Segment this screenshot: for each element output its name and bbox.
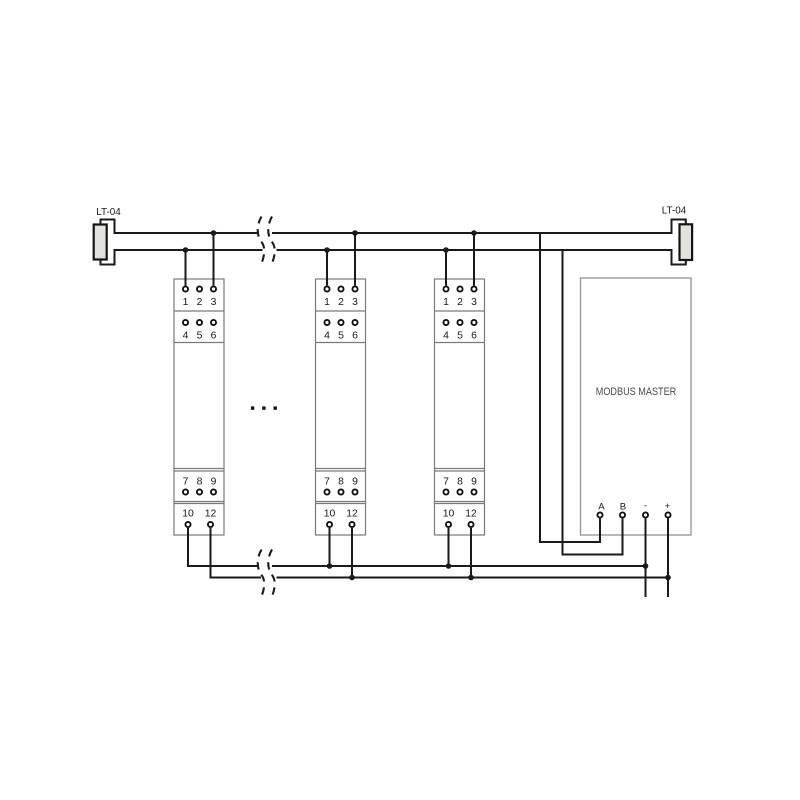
svg-text:12: 12 [205,508,217,519]
svg-text:7: 7 [324,476,330,487]
svg-text:8: 8 [338,476,344,487]
svg-text:MODBUS MASTER: MODBUS MASTER [596,386,677,398]
svg-text:10: 10 [443,508,455,519]
svg-text:10: 10 [182,508,194,519]
svg-text:3: 3 [352,297,358,308]
svg-text:5: 5 [457,330,463,341]
svg-text:6: 6 [211,330,217,341]
svg-text:1: 1 [443,297,449,308]
svg-text:6: 6 [471,330,477,341]
svg-text:8: 8 [197,476,203,487]
svg-text:6: 6 [352,330,358,341]
svg-text:3: 3 [211,297,217,308]
svg-text:7: 7 [443,476,449,487]
svg-text:8: 8 [457,476,463,487]
svg-text:2: 2 [338,297,344,308]
svg-text:B: B [620,501,626,512]
svg-text:5: 5 [197,330,203,341]
svg-text:5: 5 [338,330,344,341]
svg-text:4: 4 [443,330,449,341]
svg-text:3: 3 [471,297,477,308]
svg-text:2: 2 [457,297,463,308]
svg-text:12: 12 [465,508,477,519]
svg-text:9: 9 [471,476,477,487]
svg-text:4: 4 [324,330,330,341]
svg-text:+: + [665,501,671,512]
svg-text:LT-04: LT-04 [662,206,687,217]
svg-text:7: 7 [183,476,189,487]
svg-text:9: 9 [211,476,217,487]
svg-text:10: 10 [324,508,336,519]
svg-text:12: 12 [346,508,358,519]
svg-text:2: 2 [197,297,203,308]
svg-text:9: 9 [352,476,358,487]
svg-text:LT-04: LT-04 [96,207,121,218]
svg-text:1: 1 [324,297,330,308]
svg-text:-: - [644,500,647,511]
svg-text:A: A [598,501,605,512]
svg-text:4: 4 [183,330,189,341]
svg-text:1: 1 [183,297,189,308]
